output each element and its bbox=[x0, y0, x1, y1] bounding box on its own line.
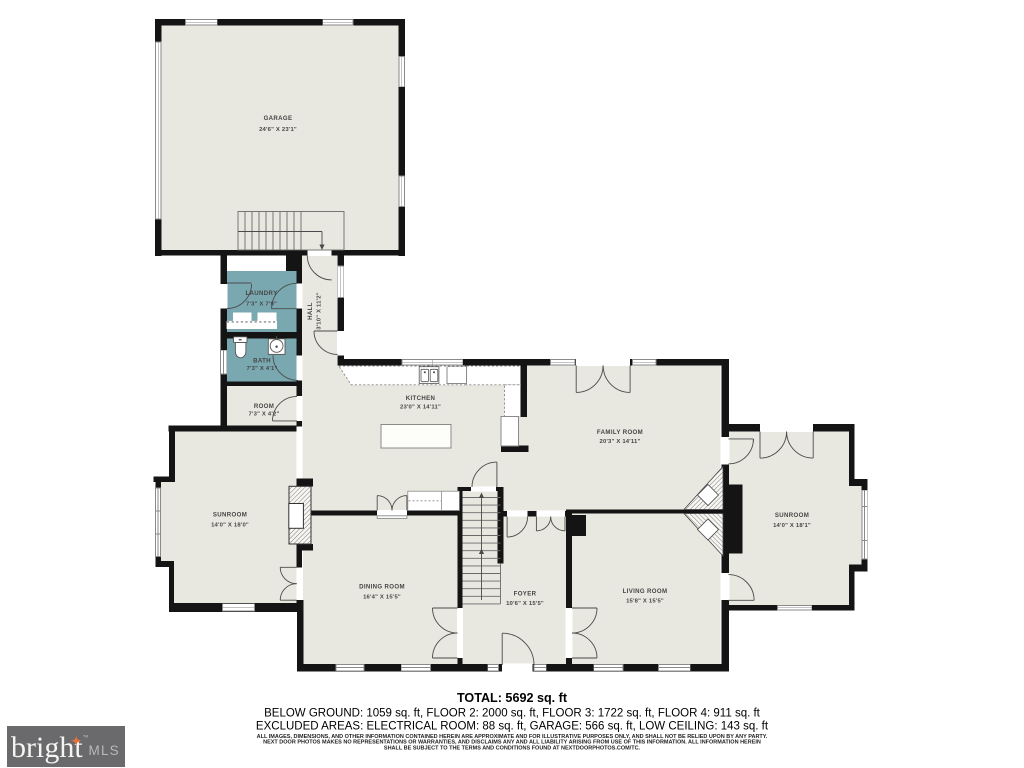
svg-text:SHALL BE SUBJECT TO THE TERMS: SHALL BE SUBJECT TO THE TERMS AND CONDIT… bbox=[384, 745, 641, 751]
svg-text:14'0" X 18'0": 14'0" X 18'0" bbox=[211, 523, 249, 529]
svg-text:ROOM: ROOM bbox=[254, 403, 274, 410]
svg-text:SUNROOM: SUNROOM bbox=[775, 512, 809, 519]
svg-text:7'3" X 7'9": 7'3" X 7'9" bbox=[246, 302, 277, 308]
svg-text:23'0" X 14'11": 23'0" X 14'11" bbox=[400, 405, 441, 411]
svg-text:BELOW GROUND: 1059 sq. ft, FLO: BELOW GROUND: 1059 sq. ft, FLOOR 2: 2000… bbox=[264, 708, 761, 720]
svg-text:BATH: BATH bbox=[253, 358, 271, 365]
svg-text:24'6" X 23'1": 24'6" X 23'1" bbox=[259, 127, 297, 133]
svg-text:16'4" X 15'5": 16'4" X 15'5" bbox=[363, 595, 401, 601]
svg-text:bright: bright bbox=[11, 731, 83, 764]
svg-text:MLS: MLS bbox=[89, 743, 120, 758]
svg-text:15'8" X 15'5": 15'8" X 15'5" bbox=[626, 599, 664, 605]
svg-text:3'10" X 11'2": 3'10" X 11'2" bbox=[317, 292, 323, 330]
svg-text:7'3" X 4'1": 7'3" X 4'1" bbox=[247, 366, 278, 372]
svg-text:LIVING ROOM: LIVING ROOM bbox=[623, 588, 668, 595]
svg-text:LAUNDRY: LAUNDRY bbox=[245, 290, 277, 297]
svg-text:20'3" X 14'11": 20'3" X 14'11" bbox=[600, 439, 641, 445]
svg-text:7'3" X 4'2": 7'3" X 4'2" bbox=[249, 412, 280, 418]
svg-text:GARAGE: GARAGE bbox=[264, 115, 293, 122]
svg-text:SUNROOM: SUNROOM bbox=[213, 512, 247, 519]
svg-text:HALL: HALL bbox=[307, 302, 314, 320]
svg-text:FAMILY ROOM: FAMILY ROOM bbox=[597, 429, 643, 436]
svg-text:DINING ROOM: DINING ROOM bbox=[359, 584, 405, 591]
svg-text:FOYER: FOYER bbox=[514, 591, 537, 598]
svg-text:TM: TM bbox=[83, 735, 88, 739]
svg-text:TOTAL: 5692 sq. ft: TOTAL: 5692 sq. ft bbox=[457, 691, 568, 705]
svg-text:KITCHEN: KITCHEN bbox=[406, 395, 436, 402]
svg-text:10'6" X 15'5": 10'6" X 15'5" bbox=[506, 601, 544, 607]
svg-text:14'0" X 18'1": 14'0" X 18'1" bbox=[773, 523, 811, 529]
svg-text:EXCLUDED AREAS: ELECTRICAL ROO: EXCLUDED AREAS: ELECTRICAL ROOM: 88 sq. … bbox=[256, 721, 769, 733]
